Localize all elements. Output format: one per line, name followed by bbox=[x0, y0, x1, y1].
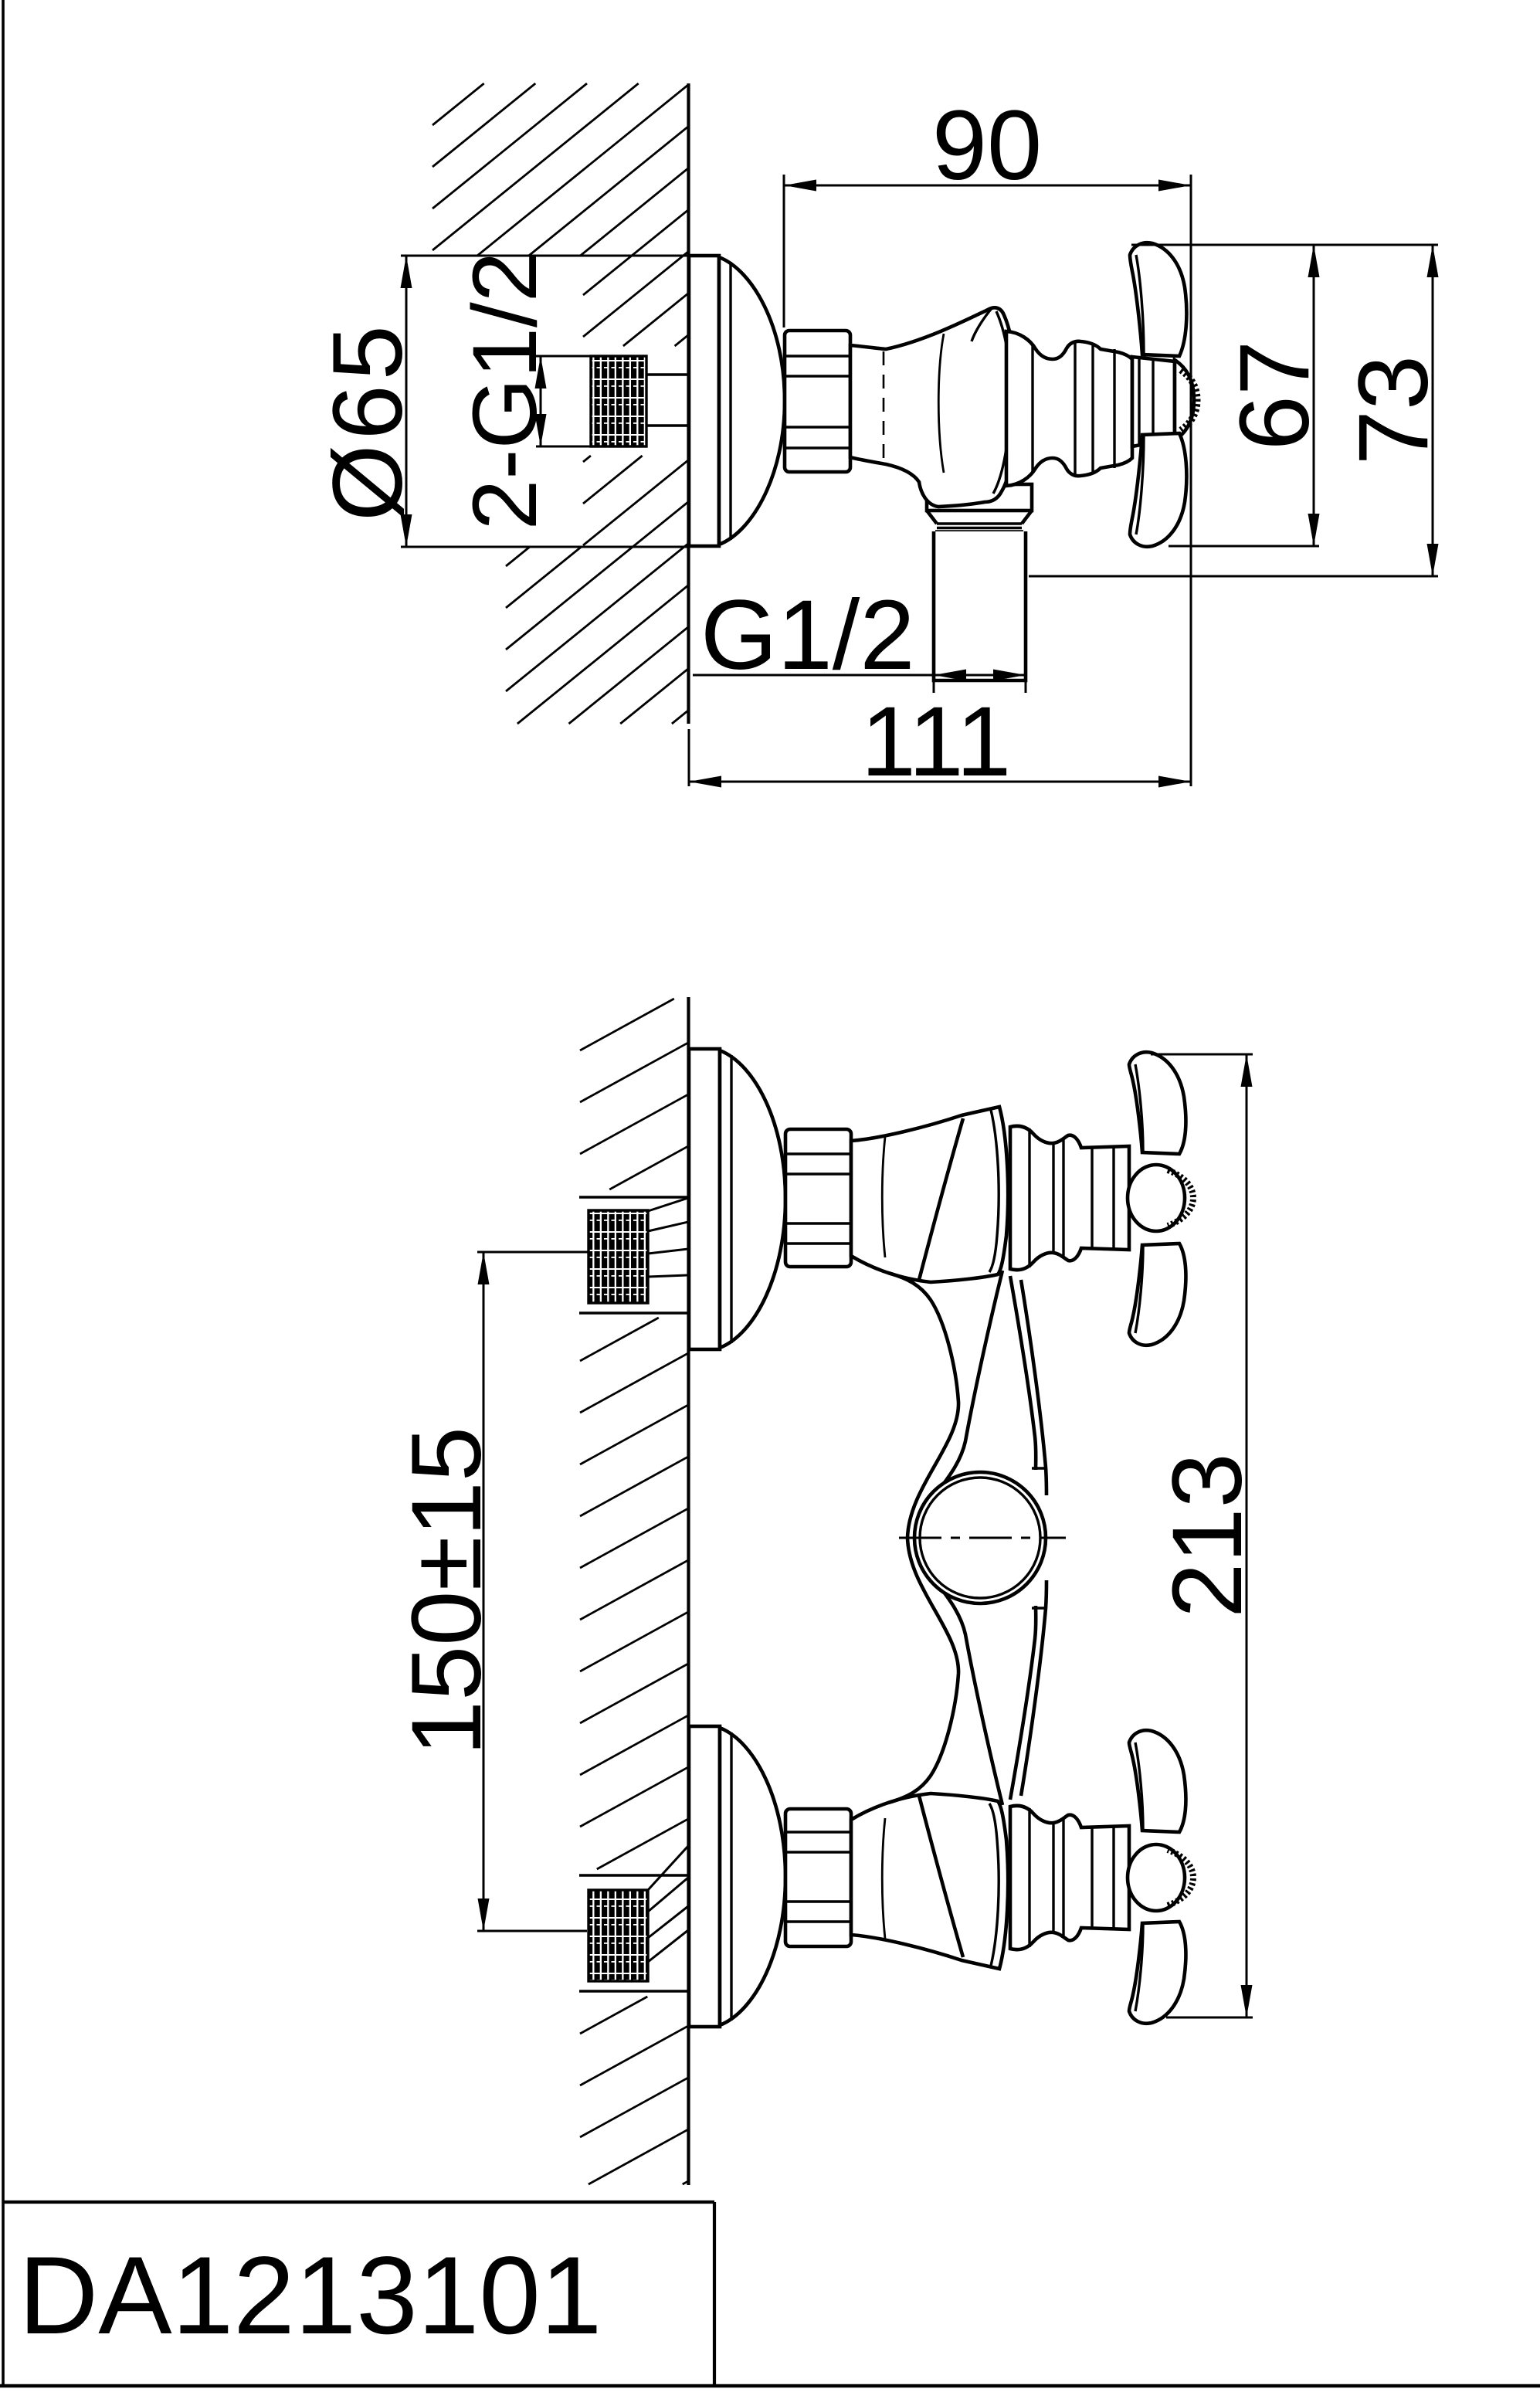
svg-text:111: 111 bbox=[861, 687, 1012, 797]
svg-text:150±15: 150±15 bbox=[392, 1427, 502, 1756]
svg-text:213: 213 bbox=[1152, 1453, 1263, 1618]
svg-text:2-G1/2: 2-G1/2 bbox=[454, 252, 556, 531]
svg-text:G1/2: G1/2 bbox=[700, 580, 915, 691]
svg-text:67: 67 bbox=[1219, 341, 1330, 450]
svg-text:Ø65: Ø65 bbox=[313, 321, 423, 521]
svg-text:DA1213101: DA1213101 bbox=[19, 2234, 602, 2357]
svg-text:73: 73 bbox=[1338, 355, 1449, 465]
svg-text:90: 90 bbox=[932, 90, 1042, 201]
